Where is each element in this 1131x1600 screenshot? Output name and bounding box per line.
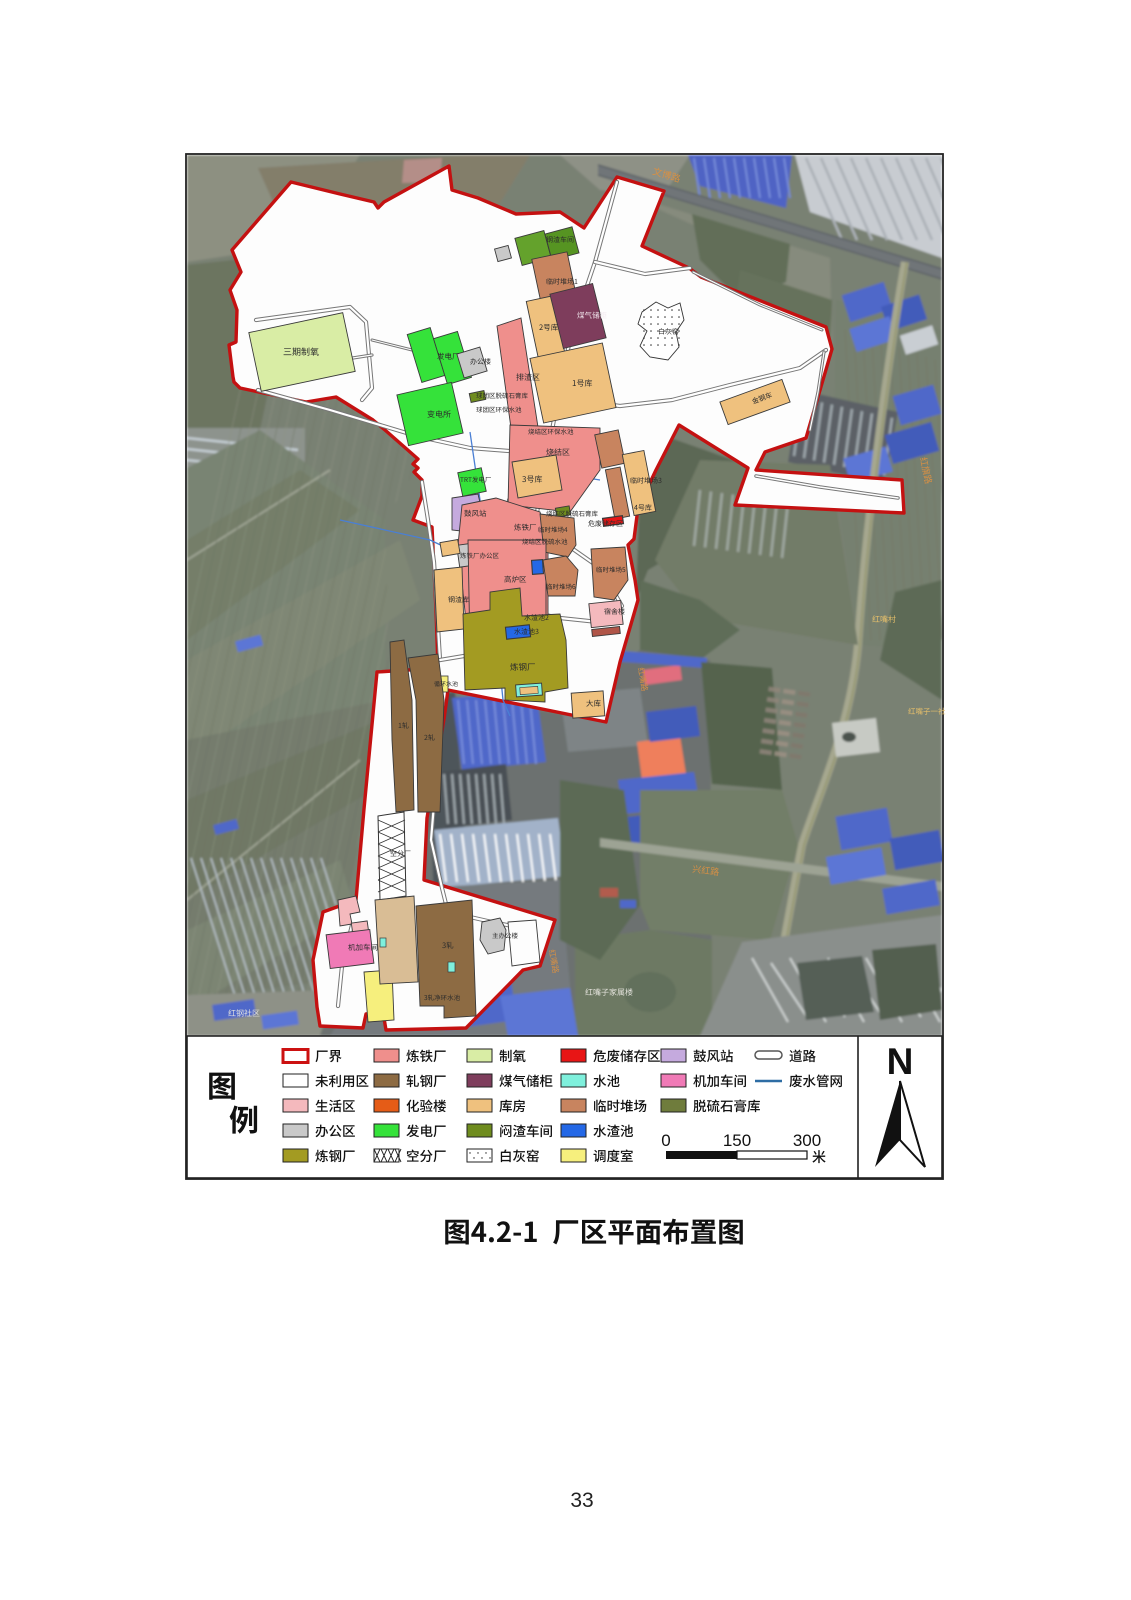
svg-text:150: 150 (723, 1131, 751, 1150)
svg-text:N: N (887, 1041, 914, 1082)
svg-text:300: 300 (793, 1131, 821, 1150)
svg-text:0: 0 (661, 1131, 670, 1150)
svg-text:33: 33 (570, 1489, 593, 1512)
